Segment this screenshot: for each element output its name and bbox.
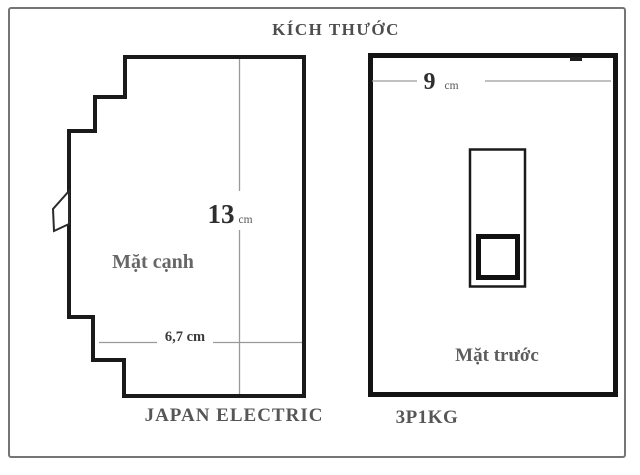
dimension-diagram-page: { "title": "KÍCH THƯỚC", "side_view": { … <box>0 0 640 475</box>
switch-toggle <box>479 237 518 278</box>
depth-dimension: 6,7 cm <box>165 330 205 345</box>
height-dimension-value: 13 <box>207 201 234 228</box>
front-view-label: Mặt trước <box>455 346 539 365</box>
side-view-label: Mặt cạnh <box>112 252 194 272</box>
page-title: KÍCH THƯỚC <box>272 21 400 38</box>
din-rail-clip-icon <box>53 191 69 231</box>
breaker-dimension-drawing <box>0 0 640 475</box>
height-dimension: 13 cm <box>207 201 252 228</box>
brand-name: JAPAN ELECTRIC <box>145 406 324 425</box>
model-number: 3P1KG <box>396 408 459 427</box>
width-dimension: 9 cm <box>423 70 458 94</box>
side-view-outline <box>69 57 304 396</box>
height-dimension-unit: cm <box>238 215 252 227</box>
terminal-mark <box>570 57 582 61</box>
width-dimension-value: 9 <box>423 70 435 94</box>
width-dimension-unit: cm <box>444 81 458 93</box>
